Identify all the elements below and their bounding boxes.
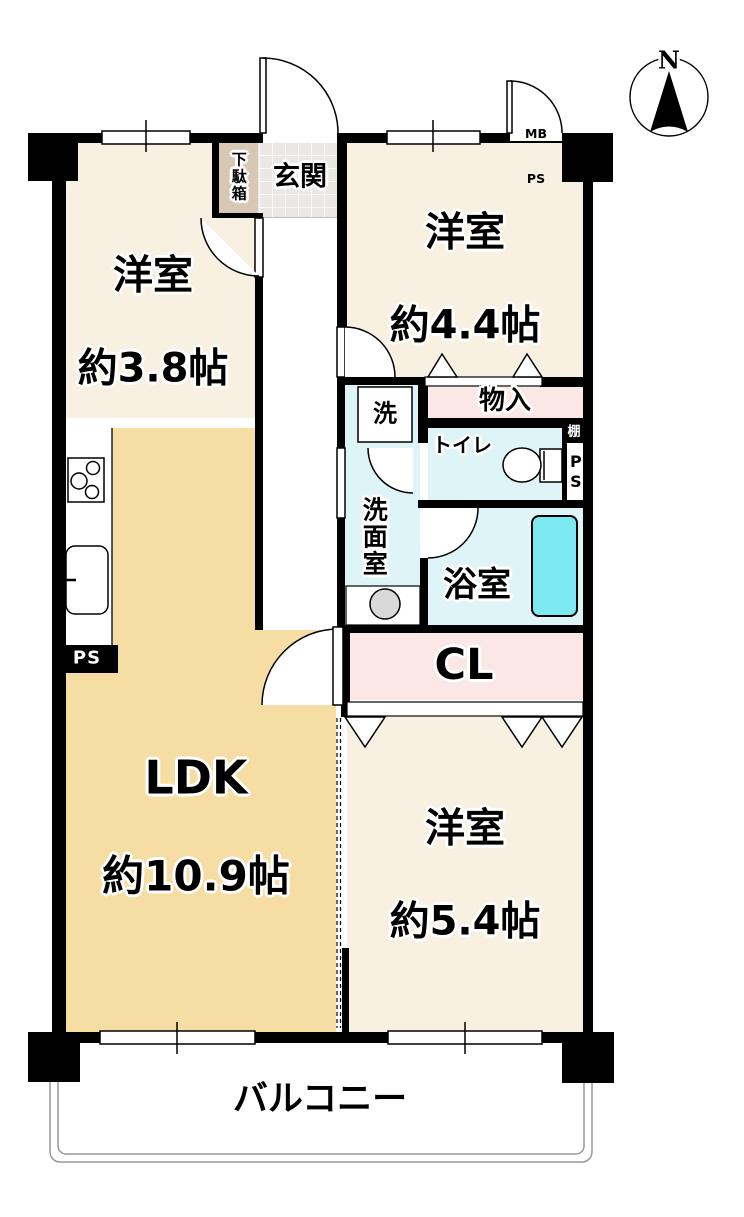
label-ps-left: PS [73, 646, 101, 669]
label-storage: 物入 [479, 385, 531, 419]
corridor-floor [263, 218, 337, 630]
room-3-8-name: 洋室 [78, 249, 229, 301]
label-bath: 浴室 [443, 563, 511, 607]
label-meter-box: MB PS [525, 96, 547, 216]
label-room-4-4: 洋室 約4.4帖 [390, 165, 541, 394]
floor-plan: N 玄関 下駄箱 洋室 約3.8帖 洋室 約4.4帖 洋室 約5.4帖 LDK … [0, 0, 744, 1217]
entrance-door-leaf [260, 58, 266, 133]
label-getabako: 下駄箱 [228, 152, 248, 203]
wash-basin-icon [370, 589, 400, 619]
room-5-4-area: 約5.4帖 [390, 896, 541, 948]
label-ldk: LDK 約10.9帖 [102, 706, 290, 945]
label-closet: CL [435, 638, 494, 694]
label-genkan: 玄関 [273, 159, 327, 194]
label-shelf: 棚 [567, 425, 580, 442]
label-room-3-8: 洋室 約3.8帖 [78, 208, 229, 437]
label-ps-right: PS [565, 452, 586, 492]
compass-north-label: N [658, 44, 680, 75]
ldk-area: 約10.9帖 [102, 849, 290, 904]
floor-plan-drawing [0, 0, 744, 1217]
room-4-4-name: 洋室 [390, 206, 541, 258]
label-washer: 洗 [373, 398, 397, 429]
room-5-4-name: 洋室 [390, 802, 541, 854]
label-room-5-4: 洋室 約5.4帖 [390, 761, 541, 990]
room-3-8-area: 約3.8帖 [78, 343, 229, 395]
label-washroom: 洗面室 [357, 497, 390, 578]
meter-box-line2: PS [525, 171, 547, 186]
toilet-icon [503, 448, 562, 482]
label-toilet: トイレ [432, 432, 492, 458]
meter-box-line1: MB [525, 126, 547, 141]
entrance-door-arc [263, 58, 338, 133]
ldk-name: LDK [102, 748, 290, 808]
label-balcony: バルコニー [233, 1077, 407, 1123]
bathtub-icon [532, 516, 577, 616]
ldk-room54-open-boundary [337, 718, 341, 1028]
room-4-4-area: 約4.4帖 [390, 300, 541, 352]
